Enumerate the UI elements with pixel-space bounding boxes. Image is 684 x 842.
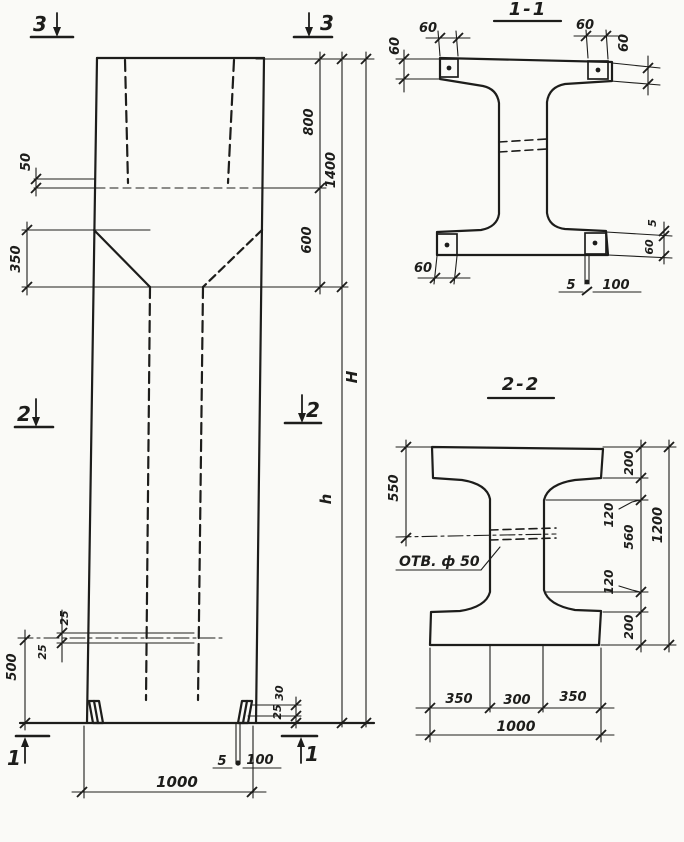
marker-1-left-label: 1 [7,746,21,770]
elevation-ticks [20,54,371,797]
section-arrow-down-icon [53,27,61,37]
dim-60-right: 60 [617,34,632,52]
dim-560: 560 [622,524,636,549]
elevation-dimension-lines [25,52,366,798]
section-marker-3-right: 3 [294,11,334,37]
section-1-1-outline [437,58,612,255]
section-2-2-ticks [401,442,674,740]
dim-anchor-100: 100 [602,278,629,293]
dim-60-top-right: 60 [576,18,594,33]
section-2-2-title: 2-2 [502,374,541,395]
dim-foot-30: 30 [273,685,286,701]
dim-200-bottom: 200 [622,614,636,639]
web-hole-lines [18,633,222,643]
dim-60-left: 60 [388,37,403,55]
dim-550: 550 [387,474,402,501]
section-arrow-down-icon [32,417,40,427]
section-2-2-dimension-lines [396,440,676,742]
hole-label: ОТВ. ф 50 [399,554,480,570]
weld-dot [585,280,590,285]
dim-350-right: 350 [559,690,586,705]
marker-1-right-label: 1 [305,742,319,766]
section-marker-1-left: 1 [7,736,49,770]
dim-1200: 1200 [651,507,666,543]
dim-plate-5: 5 [217,754,226,769]
hole-callout: ОТВ. ф 50 [396,547,500,570]
dim-500: 500 [5,653,20,680]
section-marker-1-right: 1 [282,736,319,766]
section-arrow-down-icon [305,27,313,37]
marker-3-right-label: 3 [320,11,334,35]
dim-120-top: 120 [602,502,616,527]
weld-dot [235,760,240,765]
dim-H: H [343,370,361,383]
section-arrow-up-icon [21,737,29,747]
section-arrow-up-icon [297,737,305,747]
section-arrow-down-icon [298,413,306,423]
dim-1400: 1400 [324,152,339,188]
corner-plates [437,59,608,255]
marker-3-left-label: 3 [33,12,47,36]
drawing-canvas: 3 3 2 2 1 [0,0,684,842]
dim-200-top: 200 [622,450,636,475]
section-marker-3-left: 3 [31,12,73,37]
dim-300: 300 [503,693,530,708]
dim-hole-25-lower: 25 [36,644,49,660]
section-marker-2-left: 2 [15,399,53,427]
dim-plate-100: 100 [246,753,273,768]
drawing-sheet: 3 3 2 2 1 [0,0,684,842]
marker-2-left-label: 2 [17,402,31,426]
ledge-lines [22,59,374,287]
dim-800: 800 [302,108,317,135]
section-marker-2-right: 2 [285,395,321,423]
section-2-2-outline [430,447,603,645]
hidden-pocket-lines [125,60,234,700]
dim-width-1000: 1000 [156,773,198,791]
dim-350-left: 350 [445,692,472,707]
dim-60-top-left: 60 [419,21,437,36]
dim-1000-section: 1000 [497,719,536,735]
section-1-1-title: 1-1 [509,0,548,20]
section-1-1: 1-1 [388,0,672,295]
dim-foot-25: 25 [271,704,284,720]
column-outline [20,58,374,723]
dim-120-bottom: 120 [602,569,616,594]
marker-2-right-label: 2 [306,398,320,422]
dim-60-right-plate: 60 [643,239,656,255]
dim-hole-25-upper: 25 [58,610,71,626]
section-2-2: 2-2 ОТВ. ф 50 [387,374,676,742]
dim-5-right: 5 [646,219,659,227]
dim-60-bottom-left: 60 [414,261,432,276]
dim-h: h [317,494,335,505]
dim-600: 600 [300,226,315,253]
dim-ledge-50: 50 [19,153,34,171]
column-elevation: 3 3 2 2 1 [5,11,374,798]
dim-anchor-5: 5 [566,278,575,293]
dim-taper-350: 350 [9,245,24,272]
